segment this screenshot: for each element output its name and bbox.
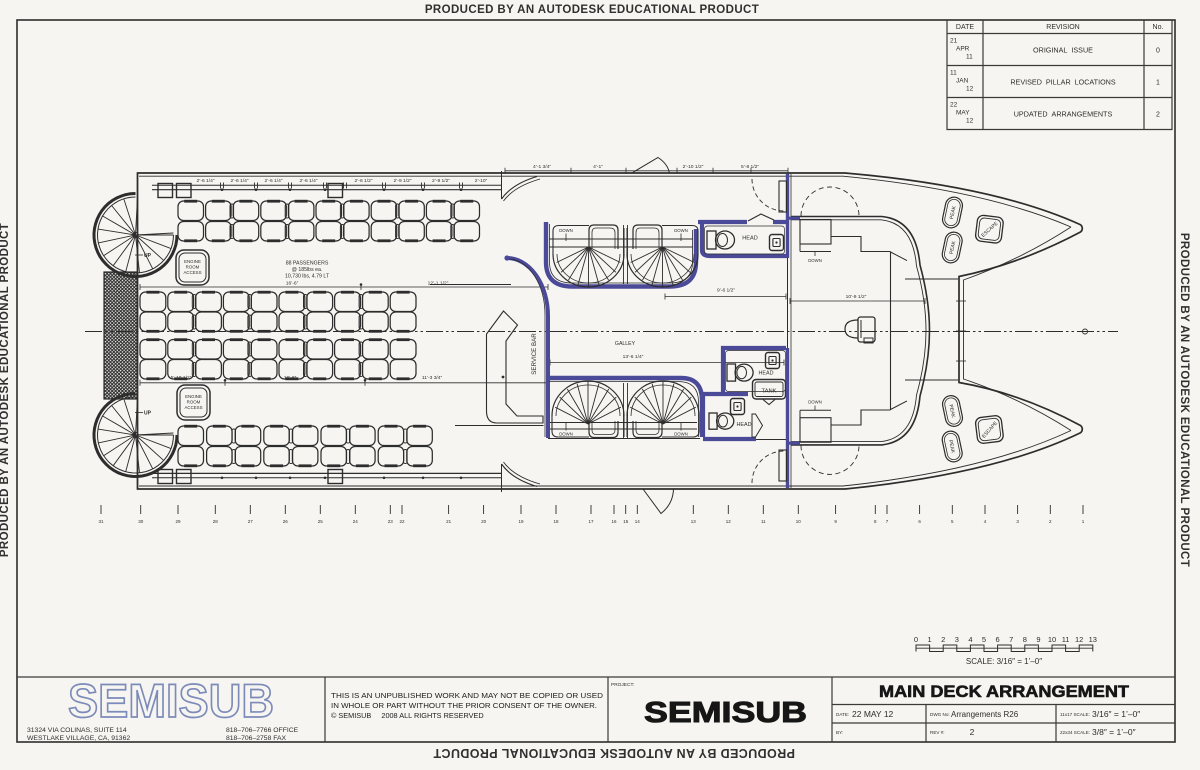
svg-text:16’-6”: 16’-6”	[286, 281, 299, 287]
svg-text:11: 11	[950, 70, 957, 77]
svg-text:DOWN: DOWN	[808, 400, 822, 405]
svg-text:HEAD: HEAD	[759, 371, 774, 377]
svg-text:22: 22	[399, 519, 405, 524]
svg-text:21: 21	[446, 519, 452, 524]
svg-text:1: 1	[1156, 80, 1160, 87]
svg-text:BY:: BY:	[836, 730, 843, 735]
svg-text:ENGINE: ENGINE	[185, 394, 202, 399]
svg-text:9: 9	[1036, 635, 1040, 644]
svg-text:© SEMISUB 2008 ALL RIGHTS: © SEMISUB 2008 ALL RIGHTS RESERVED	[331, 711, 484, 720]
svg-text:GALLEY: GALLEY	[615, 341, 636, 347]
svg-text:88 PASSENGERS: 88 PASSENGERS	[286, 261, 329, 267]
svg-text:22: 22	[950, 102, 958, 109]
svg-text:3/8″ = 1’–0″: 3/8″ = 1’–0″	[1092, 727, 1136, 737]
svg-text:DWG No:: DWG No:	[930, 712, 950, 717]
svg-text:5’-8 1/2”: 5’-8 1/2”	[741, 164, 759, 170]
svg-text:Arrangements R26: Arrangements R26	[951, 710, 1019, 719]
svg-text:11x17 SCALE:: 11x17 SCALE:	[1060, 712, 1090, 717]
svg-text:31324 VIA COLINAS, SUITE 114: 31324 VIA COLINAS, SUITE 114	[27, 727, 127, 734]
svg-text:UP: UP	[144, 411, 152, 417]
svg-text:DOWN: DOWN	[674, 432, 688, 437]
svg-text:ENGINE: ENGINE	[184, 259, 201, 264]
svg-text:9’-6 1/2”: 9’-6 1/2”	[717, 288, 735, 294]
svg-text:1: 1	[928, 635, 932, 644]
svg-text:PRODUCED BY AN AUTODESK EDUCAT: PRODUCED BY AN AUTODESK EDUCATIONAL PROD…	[433, 746, 795, 760]
svg-text:2’-10”: 2’-10”	[475, 178, 488, 184]
svg-text:SCALE: 3/16″ = 1’–0″: SCALE: 3/16″ = 1’–0″	[966, 657, 1042, 666]
svg-text:5: 5	[982, 635, 986, 644]
svg-text:2’-6 1/2”: 2’-6 1/2”	[355, 178, 373, 184]
svg-text:12: 12	[1075, 635, 1083, 644]
svg-text:13: 13	[1089, 635, 1097, 644]
svg-text:REVISED PILLAR LOCATIONS: REVISED PILLAR LOCATIONS	[1010, 78, 1116, 87]
svg-text:10: 10	[1048, 635, 1056, 644]
svg-text:MAIN DECK ARRANGEMENT: MAIN DECK ARRANGEMENT	[879, 683, 1129, 701]
svg-text:HEAD: HEAD	[737, 422, 752, 428]
svg-text:2’-9 1/2”: 2’-9 1/2”	[394, 178, 412, 184]
svg-text:8: 8	[1023, 635, 1027, 644]
svg-text:17: 17	[588, 519, 594, 524]
svg-text:4’-1”: 4’-1”	[593, 164, 603, 170]
svg-text:818–706–7766 OFFICE: 818–706–7766 OFFICE	[226, 727, 299, 734]
svg-text:DOWN: DOWN	[559, 228, 573, 233]
svg-text:10’-9 1/2”: 10’-9 1/2”	[846, 294, 867, 300]
svg-text:HEAD: HEAD	[742, 236, 758, 242]
svg-text:3/16″ = 1’–0″: 3/16″ = 1’–0″	[1092, 709, 1140, 719]
svg-text:14: 14	[635, 519, 641, 524]
svg-text:3: 3	[955, 635, 959, 644]
svg-text:13’-6 1/4”: 13’-6 1/4”	[623, 354, 644, 360]
svg-text:No.: No.	[1153, 24, 1164, 31]
svg-text:MAY: MAY	[956, 110, 970, 117]
svg-text:11: 11	[1062, 635, 1070, 644]
svg-text:19: 19	[518, 519, 524, 524]
svg-text:12: 12	[966, 118, 974, 125]
svg-text:24: 24	[353, 519, 359, 524]
svg-text:4’-1 3/4”: 4’-1 3/4”	[533, 164, 551, 170]
svg-text:26: 26	[283, 519, 289, 524]
svg-text:22x34 SCALE:: 22x34 SCALE:	[1060, 730, 1090, 735]
svg-text:10,730 lbs, 4.79 LT: 10,730 lbs, 4.79 LT	[285, 274, 330, 280]
svg-text:ROOM: ROOM	[186, 265, 200, 270]
svg-text:6: 6	[996, 635, 1000, 644]
svg-text:2’-6 1/4”: 2’-6 1/4”	[197, 178, 215, 184]
svg-text:PROJECT:: PROJECT:	[611, 682, 634, 688]
svg-text:15: 15	[623, 519, 629, 524]
svg-text:22 MAY 12: 22 MAY 12	[852, 709, 894, 719]
svg-text:REV #:: REV #:	[930, 730, 945, 735]
svg-text:16: 16	[611, 519, 617, 524]
svg-text:DOWN: DOWN	[674, 228, 688, 233]
svg-text:5’-10 1/2”: 5’-10 1/2”	[171, 375, 192, 381]
svg-text:IN WHOLE OR PART WITHOUT THE P: IN WHOLE OR PART WITHOUT THE PRIOR CONSE…	[331, 701, 597, 710]
svg-text:7: 7	[1009, 635, 1013, 644]
svg-text:WESTLAKE VILLAGE, CA, 91362: WESTLAKE VILLAGE, CA, 91362	[27, 735, 130, 742]
svg-text:ACCESS: ACCESS	[184, 405, 202, 410]
svg-text:30: 30	[138, 519, 144, 524]
svg-text:DATE:: DATE:	[836, 712, 849, 717]
svg-text:2’-9 1/2”: 2’-9 1/2”	[432, 178, 450, 184]
svg-text:20: 20	[481, 519, 487, 524]
svg-text:11: 11	[966, 54, 973, 61]
svg-text:UP: UP	[144, 253, 152, 259]
svg-text:27: 27	[248, 519, 254, 524]
svg-text:16’-6”: 16’-6”	[284, 375, 297, 381]
svg-text:11: 11	[761, 519, 766, 524]
svg-text:12’-1 1/2”: 12’-1 1/2”	[428, 281, 449, 287]
svg-text:@ 185lbs ea.: @ 185lbs ea.	[292, 267, 323, 273]
svg-text:THIS IS AN UNPUBLISHED WORK AN: THIS IS AN UNPUBLISHED WORK AND MAY NOT …	[331, 691, 603, 700]
svg-text:SEMISUB: SEMISUB	[644, 697, 807, 729]
svg-text:2’-10 1/2”: 2’-10 1/2”	[683, 164, 704, 170]
svg-text:JAN: JAN	[956, 78, 969, 85]
svg-text:31: 31	[98, 519, 104, 524]
svg-text:29: 29	[175, 519, 181, 524]
svg-text:818–706–2758 FAX: 818–706–2758 FAX	[226, 735, 287, 742]
svg-text:ORIGINAL ISSUE: ORIGINAL ISSUE	[1033, 46, 1093, 55]
svg-text:0: 0	[914, 635, 918, 644]
svg-text:4: 4	[968, 635, 972, 644]
svg-text:25: 25	[318, 519, 324, 524]
svg-text:2’-6 1/4”: 2’-6 1/4”	[231, 178, 249, 184]
svg-text:18: 18	[553, 519, 559, 524]
svg-text:28: 28	[213, 519, 219, 524]
svg-text:23: 23	[388, 519, 394, 524]
svg-text:APR: APR	[956, 46, 970, 53]
svg-text:12: 12	[966, 86, 974, 93]
svg-text:2’-6 1/4”: 2’-6 1/4”	[265, 178, 283, 184]
svg-text:SERVICE BAR: SERVICE BAR	[531, 333, 538, 375]
svg-text:2: 2	[941, 635, 945, 644]
svg-text:PRODUCED BY AN AUTODESK EDUCAT: PRODUCED BY AN AUTODESK EDUCATIONAL PROD…	[1178, 233, 1190, 567]
svg-text:UPDATED ARRANGEMENTS: UPDATED ARRANGEMENTS	[1014, 110, 1113, 119]
svg-text:PRODUCED BY AN AUTODESK EDUCAT: PRODUCED BY AN AUTODESK EDUCATIONAL PROD…	[425, 4, 759, 16]
svg-text:2: 2	[1156, 112, 1160, 119]
svg-text:DOWN: DOWN	[808, 258, 822, 263]
svg-text:12: 12	[726, 519, 732, 524]
svg-text:21: 21	[950, 38, 958, 45]
svg-text:PRODUCED BY AN AUTODESK EDUCAT: PRODUCED BY AN AUTODESK EDUCATIONAL PROD…	[0, 223, 11, 557]
svg-text:ACCESS: ACCESS	[183, 270, 201, 275]
svg-text:13: 13	[691, 519, 697, 524]
svg-text:DOWN: DOWN	[559, 432, 573, 437]
svg-text:TANK: TANK	[761, 389, 776, 395]
svg-text:11’-3 3/4”: 11’-3 3/4”	[422, 375, 443, 381]
svg-text:2’-6 1/4”: 2’-6 1/4”	[300, 178, 318, 184]
svg-text:0: 0	[1156, 48, 1160, 55]
svg-text:SEMISUB: SEMISUB	[68, 674, 274, 727]
svg-text:REVISION: REVISION	[1046, 24, 1079, 31]
svg-text:DATE: DATE	[956, 24, 974, 31]
svg-text:ROOM: ROOM	[187, 400, 201, 405]
svg-text:2: 2	[970, 727, 975, 737]
svg-text:10: 10	[796, 519, 802, 524]
